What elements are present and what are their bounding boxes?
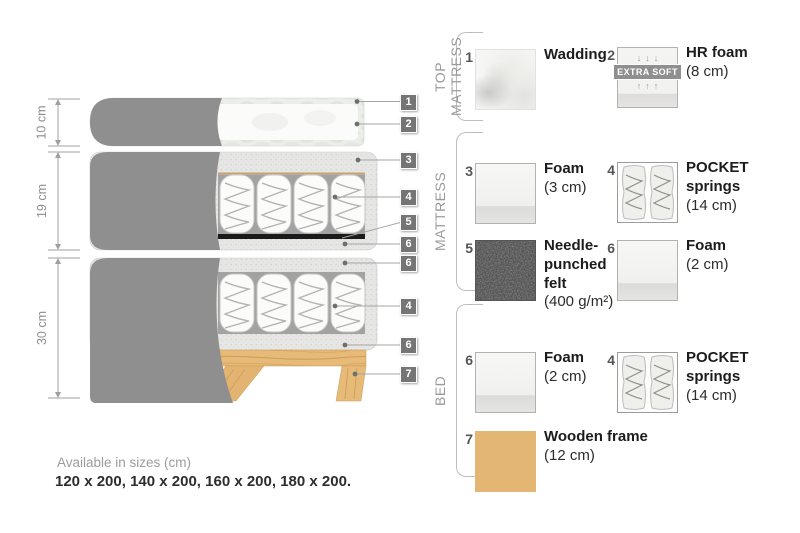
available-sizes-title: Available in sizes (cm) bbox=[57, 455, 191, 470]
legend-item-number: 5 bbox=[461, 240, 473, 256]
foam-swatch bbox=[475, 163, 536, 224]
legend-item-size: (14 cm) bbox=[686, 197, 764, 216]
legend-item-name: HR foam bbox=[686, 44, 764, 63]
legend-item-number: 1 bbox=[461, 49, 473, 65]
mattress-construction-infographic: 10 cm 19 cm 30 cm bbox=[0, 0, 800, 533]
callout-badge: 6 bbox=[400, 255, 417, 272]
section-label-bed: BED bbox=[432, 304, 452, 477]
pocket-springs-icon bbox=[618, 353, 677, 412]
wadding-swatch bbox=[475, 49, 536, 110]
callout-badge: 7 bbox=[400, 366, 417, 383]
top-mattress-section bbox=[90, 98, 364, 146]
callout-badge: 6 bbox=[400, 337, 417, 354]
soft-arrows-down-icon: ↓↓↓ bbox=[633, 53, 663, 63]
pocket-springs-swatch bbox=[617, 352, 678, 413]
wood-swatch bbox=[475, 431, 536, 492]
legend-item-size: (14 cm) bbox=[686, 387, 764, 406]
legend-item-number: 6 bbox=[603, 240, 615, 256]
felt-texture-icon bbox=[476, 241, 535, 300]
callout-badge: 2 bbox=[400, 116, 417, 133]
extra-soft-badge: EXTRA SOFT bbox=[613, 64, 682, 80]
foam-swatch bbox=[617, 240, 678, 301]
soft-arrows-up-icon: ↑↑↑ bbox=[633, 81, 663, 91]
available-sizes-list: 120 x 200, 140 x 200, 160 x 200, 180 x 2… bbox=[55, 473, 351, 490]
mattress-section bbox=[90, 152, 377, 250]
legend-item-size: (400 g/m²) bbox=[544, 293, 622, 312]
foam-swatch bbox=[475, 352, 536, 413]
callout-badge: 4 bbox=[400, 298, 417, 315]
felt-swatch bbox=[475, 240, 536, 301]
legend-item-number: 4 bbox=[603, 162, 615, 178]
dimension-label-mattress: 19 cm bbox=[35, 184, 49, 218]
callout-badge: 5 bbox=[400, 214, 417, 231]
legend-item-name: Foam bbox=[686, 237, 764, 256]
legend-item-number: 3 bbox=[461, 163, 473, 179]
legend-item-name: POCKET springs bbox=[686, 159, 764, 197]
legend-item-size: (3 cm) bbox=[544, 179, 622, 198]
dimension-label-bed: 30 cm bbox=[35, 311, 49, 345]
pocket-springs-icon bbox=[618, 163, 677, 222]
legend-item-name: POCKET springs bbox=[686, 349, 764, 387]
legend-item-number: 6 bbox=[461, 352, 473, 368]
pocket-springs-swatch bbox=[617, 162, 678, 223]
callout-badge: 1 bbox=[400, 94, 417, 111]
callout-badge: 6 bbox=[400, 236, 417, 253]
callout-badge: 3 bbox=[400, 152, 417, 169]
legend-item-size: (2 cm) bbox=[686, 256, 764, 275]
bed-section bbox=[90, 258, 377, 403]
section-label-mattress: MATTRESS bbox=[432, 132, 452, 291]
legend-item-size: (8 cm) bbox=[686, 63, 764, 82]
legend-item-number: 4 bbox=[603, 352, 615, 368]
section-label-top-mattress: TOP MATTRESS bbox=[432, 32, 452, 121]
hr-foam-swatch: ↓↓↓ EXTRA SOFT ↑↑↑ bbox=[617, 47, 678, 108]
dimension-label-top-mattress: 10 cm bbox=[35, 105, 49, 139]
legend-item-number: 2 bbox=[603, 47, 615, 63]
callout-badge: 4 bbox=[400, 189, 417, 206]
legend-item-size: (2 cm) bbox=[544, 368, 622, 387]
bed-cross-section-diagram: 10 cm 19 cm 30 cm bbox=[30, 88, 402, 418]
dimension-indicators bbox=[48, 99, 80, 398]
legend-item-number: 7 bbox=[461, 431, 473, 447]
legend-item-name: Wooden frame bbox=[544, 428, 674, 447]
legend-item-size: (12 cm) bbox=[544, 447, 674, 466]
